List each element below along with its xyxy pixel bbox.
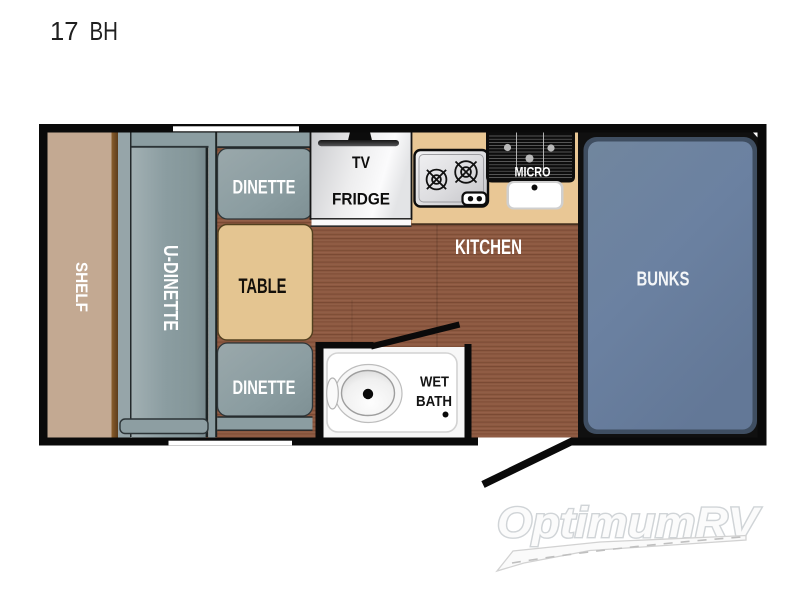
svg-text:U-DINETTE: U-DINETTE — [159, 245, 181, 331]
svg-text:BATH: BATH — [416, 393, 452, 410]
svg-text:TV: TV — [352, 154, 370, 172]
svg-text:TABLE: TABLE — [239, 275, 287, 298]
svg-text:DINETTE: DINETTE — [233, 377, 296, 399]
svg-text:BUNKS: BUNKS — [637, 269, 690, 291]
svg-text:BH: BH — [90, 16, 119, 46]
svg-text:17: 17 — [50, 16, 79, 46]
svg-text:SHELF: SHELF — [72, 262, 90, 312]
svg-text:FRIDGE: FRIDGE — [332, 191, 390, 209]
svg-text:WET: WET — [420, 374, 449, 391]
svg-text:DINETTE: DINETTE — [233, 177, 296, 199]
svg-text:MICRO: MICRO — [515, 164, 551, 180]
svg-text:KITCHEN: KITCHEN — [455, 236, 522, 259]
